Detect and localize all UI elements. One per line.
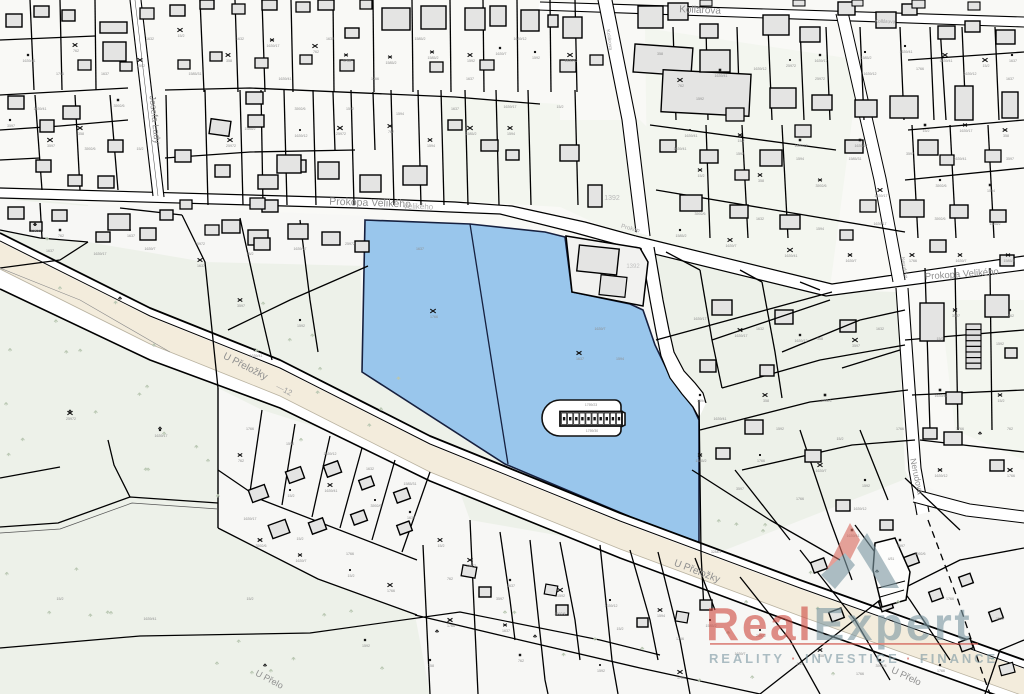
svg-text:15/2: 15/2 — [288, 494, 295, 498]
svg-text:3284/3: 3284/3 — [711, 550, 721, 554]
svg-text:1639/17: 1639/17 — [504, 105, 517, 109]
svg-text:1592: 1592 — [696, 97, 704, 101]
svg-text:1594: 1594 — [427, 144, 435, 148]
svg-text:1594: 1594 — [816, 227, 824, 231]
svg-text:762: 762 — [1007, 427, 1013, 431]
svg-text:1632: 1632 — [756, 217, 764, 221]
svg-text:1639/12: 1639/12 — [935, 474, 948, 478]
svg-text:1585/2: 1585/2 — [990, 222, 1001, 226]
svg-text:3592/6: 3592/6 — [85, 147, 96, 151]
svg-text:1585/2: 1585/2 — [386, 61, 397, 65]
svg-text:15/2: 15/2 — [57, 597, 64, 601]
svg-text:3597: 3597 — [852, 344, 860, 348]
svg-text:1639/7: 1639/7 — [595, 327, 606, 331]
svg-text:1639/17: 1639/17 — [735, 334, 748, 338]
svg-text:3597: 3597 — [897, 544, 905, 548]
svg-text:1639/41: 1639/41 — [954, 157, 967, 161]
svg-text:1639/41: 1639/41 — [940, 59, 953, 63]
svg-text:1766: 1766 — [796, 497, 804, 501]
svg-text:1639/17: 1639/17 — [694, 317, 707, 321]
svg-text:25972: 25972 — [466, 564, 476, 568]
svg-text:1637: 1637 — [197, 264, 205, 268]
svg-text:1592: 1592 — [996, 617, 1004, 621]
svg-text:3597: 3597 — [736, 487, 744, 491]
svg-text:15/2: 15/2 — [837, 437, 844, 441]
svg-text:1632: 1632 — [146, 37, 154, 41]
svg-text:1639/7: 1639/7 — [496, 52, 507, 56]
svg-text:1637: 1637 — [127, 234, 135, 238]
svg-text:1639/41: 1639/41 — [715, 74, 728, 78]
svg-text:1592: 1592 — [362, 644, 370, 648]
svg-text:1766: 1766 — [937, 669, 945, 673]
svg-text:25972: 25972 — [336, 132, 346, 136]
svg-text:1594: 1594 — [507, 132, 515, 136]
svg-text:15/2: 15/2 — [923, 129, 930, 133]
svg-text:1639/17: 1639/17 — [874, 222, 887, 226]
svg-text:25972: 25972 — [345, 242, 355, 246]
svg-text:1639/17: 1639/17 — [94, 252, 107, 256]
svg-text:1766: 1766 — [56, 72, 64, 76]
svg-text:1392: 1392 — [604, 195, 620, 202]
svg-text:3592/6: 3592/6 — [935, 217, 946, 221]
svg-text:1585/2: 1585/2 — [696, 459, 707, 463]
svg-text:1639/12: 1639/12 — [754, 67, 767, 71]
svg-text:762: 762 — [73, 49, 79, 53]
svg-text:1592: 1592 — [996, 342, 1004, 346]
svg-text:1639/17: 1639/17 — [875, 194, 888, 198]
svg-text:15/2: 15/2 — [738, 139, 745, 143]
svg-text:1766: 1766 — [1007, 474, 1015, 478]
svg-text:15/2: 15/2 — [178, 34, 185, 38]
svg-text:1639/17: 1639/17 — [294, 247, 307, 251]
svg-text:1639/41: 1639/41 — [714, 417, 727, 421]
svg-text:1594: 1594 — [796, 157, 804, 161]
svg-text:1766: 1766 — [246, 427, 254, 431]
svg-text:1639/12: 1639/12 — [864, 72, 877, 76]
svg-text:15/2: 15/2 — [937, 337, 944, 341]
svg-text:1632: 1632 — [236, 37, 244, 41]
svg-text:1592: 1592 — [557, 594, 565, 598]
svg-text:358: 358 — [817, 337, 823, 341]
svg-text:1585/2: 1585/2 — [415, 37, 426, 41]
svg-text:358: 358 — [758, 179, 764, 183]
svg-text:1639/41: 1639/41 — [144, 617, 157, 621]
svg-text:1759/30: 1759/30 — [586, 429, 598, 433]
svg-text:15/2: 15/2 — [137, 147, 144, 151]
svg-text:25972: 25972 — [786, 64, 796, 68]
svg-text:1585/2: 1585/2 — [676, 234, 687, 238]
svg-text:3592/6: 3592/6 — [816, 184, 827, 188]
svg-text:1639/12: 1639/12 — [514, 37, 527, 41]
svg-text:1392: 1392 — [626, 264, 640, 270]
svg-text:1639/41: 1639/41 — [785, 254, 798, 258]
svg-text:1637: 1637 — [502, 629, 510, 633]
svg-text:1632: 1632 — [326, 37, 334, 41]
svg-text:762: 762 — [518, 659, 524, 663]
svg-text:15/2: 15/2 — [983, 64, 990, 68]
svg-text:1592: 1592 — [297, 324, 305, 328]
svg-text:1639/12: 1639/12 — [605, 604, 618, 608]
svg-text:3592/6: 3592/6 — [695, 212, 706, 216]
svg-text:1585/31: 1585/31 — [849, 157, 862, 161]
svg-text:1592: 1592 — [346, 107, 354, 111]
svg-text:1639/17: 1639/17 — [155, 434, 168, 438]
svg-text:1585/31: 1585/31 — [404, 482, 417, 486]
svg-text:1639/7: 1639/7 — [726, 244, 737, 248]
svg-text:1592: 1592 — [597, 669, 605, 673]
svg-text:3597: 3597 — [906, 152, 914, 156]
svg-text:1766: 1766 — [956, 427, 964, 431]
svg-text:1585/2: 1585/2 — [31, 229, 42, 233]
svg-text:1766: 1766 — [346, 552, 354, 556]
svg-text:3597: 3597 — [47, 144, 55, 148]
svg-text:1639/41: 1639/41 — [900, 50, 913, 54]
svg-text:1639/41: 1639/41 — [250, 354, 263, 358]
svg-text:1637: 1637 — [407, 516, 415, 520]
svg-text:1639/7: 1639/7 — [816, 469, 827, 473]
svg-text:1592: 1592 — [736, 152, 744, 156]
svg-text:1639/41: 1639/41 — [674, 147, 687, 151]
svg-text:762: 762 — [678, 84, 684, 88]
svg-text:1639/17: 1639/17 — [244, 517, 257, 521]
svg-text:3597: 3597 — [7, 124, 15, 128]
svg-text:3592/6: 3592/6 — [915, 552, 926, 556]
svg-text:1632: 1632 — [876, 327, 884, 331]
svg-text:3592/6: 3592/6 — [295, 107, 306, 111]
svg-text:3592/6: 3592/6 — [114, 104, 125, 108]
svg-text:1639/17: 1639/17 — [960, 129, 973, 133]
svg-text:15/2: 15/2 — [348, 574, 355, 578]
svg-text:1766: 1766 — [896, 427, 904, 431]
svg-text:762: 762 — [447, 577, 453, 581]
svg-text:3597: 3597 — [952, 314, 960, 318]
svg-text:1585/2: 1585/2 — [861, 56, 872, 60]
svg-text:1592: 1592 — [862, 484, 870, 488]
svg-text:1639/7: 1639/7 — [846, 259, 857, 263]
svg-text:15/2: 15/2 — [297, 537, 304, 541]
svg-text:1639/17: 1639/17 — [815, 59, 828, 63]
svg-text:1594: 1594 — [697, 399, 705, 403]
svg-text:1594: 1594 — [657, 614, 665, 618]
svg-text:25972: 25972 — [226, 144, 236, 148]
svg-text:3592/6: 3592/6 — [936, 184, 947, 188]
svg-text:762: 762 — [388, 130, 394, 134]
svg-text:1637: 1637 — [466, 77, 474, 81]
svg-text:1639/17: 1639/17 — [855, 144, 868, 148]
svg-text:1585/2: 1585/2 — [428, 56, 439, 60]
svg-text:358: 358 — [763, 399, 769, 403]
svg-text:1639/41: 1639/41 — [685, 134, 698, 138]
svg-text:15/2: 15/2 — [698, 174, 705, 178]
svg-text:1585/2: 1585/2 — [245, 127, 256, 131]
svg-text:3592/6: 3592/6 — [371, 504, 382, 508]
svg-text:1766: 1766 — [430, 315, 438, 319]
svg-text:15/2: 15/2 — [247, 252, 254, 256]
svg-text:25972: 25972 — [815, 77, 825, 81]
svg-text:1639/41: 1639/41 — [23, 59, 36, 63]
svg-text:1766: 1766 — [447, 624, 455, 628]
svg-text:15/2: 15/2 — [438, 544, 445, 548]
svg-text:1637: 1637 — [507, 584, 515, 588]
svg-text:1766: 1766 — [909, 259, 917, 263]
svg-text:1639/7: 1639/7 — [145, 247, 156, 251]
svg-text:762: 762 — [58, 234, 64, 238]
svg-text:1766: 1766 — [387, 589, 395, 593]
svg-text:1594: 1594 — [616, 357, 624, 361]
svg-text:1594: 1594 — [987, 189, 995, 193]
svg-text:1766: 1766 — [676, 637, 684, 641]
svg-text:1639/41: 1639/41 — [935, 394, 948, 398]
svg-text:1759/23: 1759/23 — [585, 403, 597, 407]
svg-text:3597: 3597 — [237, 304, 245, 308]
svg-text:1766: 1766 — [677, 676, 685, 680]
svg-text:1632: 1632 — [756, 327, 764, 331]
svg-text:3592/6: 3592/6 — [256, 544, 267, 548]
svg-text:1592: 1592 — [776, 427, 784, 431]
svg-text:1766: 1766 — [916, 67, 924, 71]
svg-text:3592/6: 3592/6 — [555, 612, 566, 616]
svg-text:1585/2: 1585/2 — [466, 132, 477, 136]
svg-text:1639/41: 1639/41 — [34, 107, 47, 111]
svg-text:358: 358 — [657, 52, 663, 56]
svg-text:1639/12: 1639/12 — [324, 452, 337, 456]
svg-text:1592: 1592 — [467, 59, 475, 63]
svg-text:RealExpert: RealExpert — [706, 598, 972, 650]
svg-text:358: 358 — [428, 664, 434, 668]
svg-text:762: 762 — [1008, 314, 1014, 318]
svg-text:1639/12: 1639/12 — [565, 59, 578, 63]
svg-text:1639/41: 1639/41 — [325, 489, 338, 493]
svg-text:Kollárova: Kollárova — [875, 19, 896, 26]
svg-text:1766: 1766 — [757, 459, 765, 463]
svg-text:1594: 1594 — [396, 112, 404, 116]
svg-text:358: 358 — [1003, 134, 1009, 138]
svg-text:1632: 1632 — [366, 467, 374, 471]
svg-text:1592: 1592 — [137, 64, 145, 68]
svg-text:1639/12: 1639/12 — [295, 134, 308, 138]
svg-text:25972: 25972 — [195, 242, 205, 246]
svg-text:1585/2: 1585/2 — [1004, 259, 1015, 263]
svg-text:1594: 1594 — [286, 442, 294, 446]
svg-text:358: 358 — [78, 132, 84, 136]
svg-text:1639/12: 1639/12 — [795, 144, 808, 148]
svg-text:1639/7: 1639/7 — [296, 559, 307, 563]
svg-text:1766: 1766 — [856, 672, 864, 676]
svg-text:1637: 1637 — [1009, 59, 1017, 63]
svg-text:1639/12: 1639/12 — [854, 507, 867, 511]
svg-text:15/2: 15/2 — [557, 105, 564, 109]
svg-text:1592: 1592 — [532, 56, 540, 60]
svg-text:762: 762 — [313, 50, 319, 54]
svg-text:1639/12: 1639/12 — [964, 72, 977, 76]
svg-text:3597: 3597 — [496, 597, 504, 601]
svg-text:1637: 1637 — [101, 72, 109, 76]
svg-text:1766: 1766 — [343, 59, 351, 63]
svg-text:1637: 1637 — [576, 357, 584, 361]
svg-text:1639/41: 1639/41 — [279, 77, 292, 81]
svg-text:1637: 1637 — [451, 107, 459, 111]
svg-text:762: 762 — [238, 459, 244, 463]
svg-text:25972: 25972 — [66, 417, 76, 421]
svg-text:Kollárova: Kollárova — [679, 4, 721, 16]
svg-text:1766: 1766 — [371, 77, 379, 81]
svg-text:3592/6: 3592/6 — [821, 399, 832, 403]
svg-text:4/31: 4/31 — [888, 557, 895, 561]
svg-text:1637: 1637 — [416, 247, 424, 251]
svg-text:Velikého: Velikého — [403, 201, 434, 211]
svg-text:3597: 3597 — [1006, 157, 1014, 161]
svg-text:1637: 1637 — [1006, 77, 1014, 81]
svg-text:15/2: 15/2 — [617, 627, 624, 631]
svg-text:1585/31: 1585/31 — [189, 72, 202, 76]
svg-text:1639/7: 1639/7 — [956, 259, 967, 263]
svg-text:REALITY · INVESTICE · FINANCE: REALITY · INVESTICE · FINANCE — [709, 651, 998, 666]
svg-text:1639/12: 1639/12 — [795, 339, 808, 343]
svg-text:1639/17: 1639/17 — [267, 44, 280, 48]
svg-text:1637: 1637 — [46, 249, 54, 253]
svg-text:15/2: 15/2 — [247, 597, 254, 601]
svg-text:358: 358 — [226, 59, 232, 63]
svg-text:15/2: 15/2 — [998, 399, 1005, 403]
